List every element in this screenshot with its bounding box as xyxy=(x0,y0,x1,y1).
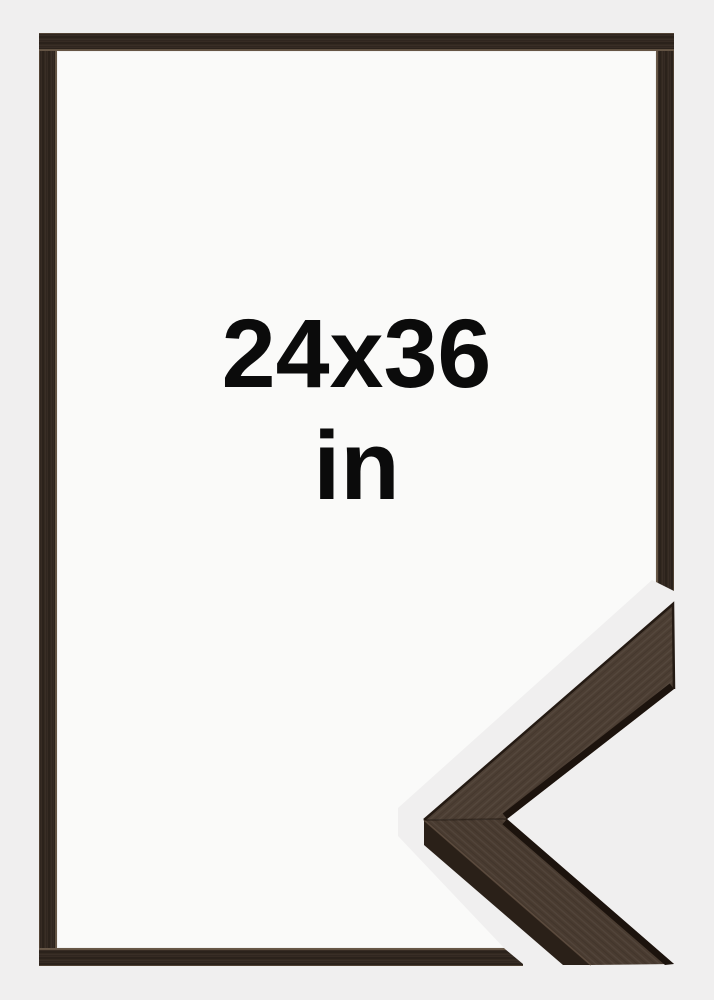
product-photo: 24x36 in xyxy=(0,0,714,1000)
miter-seam xyxy=(424,819,507,820)
corner-detail-overlay xyxy=(0,0,714,1000)
